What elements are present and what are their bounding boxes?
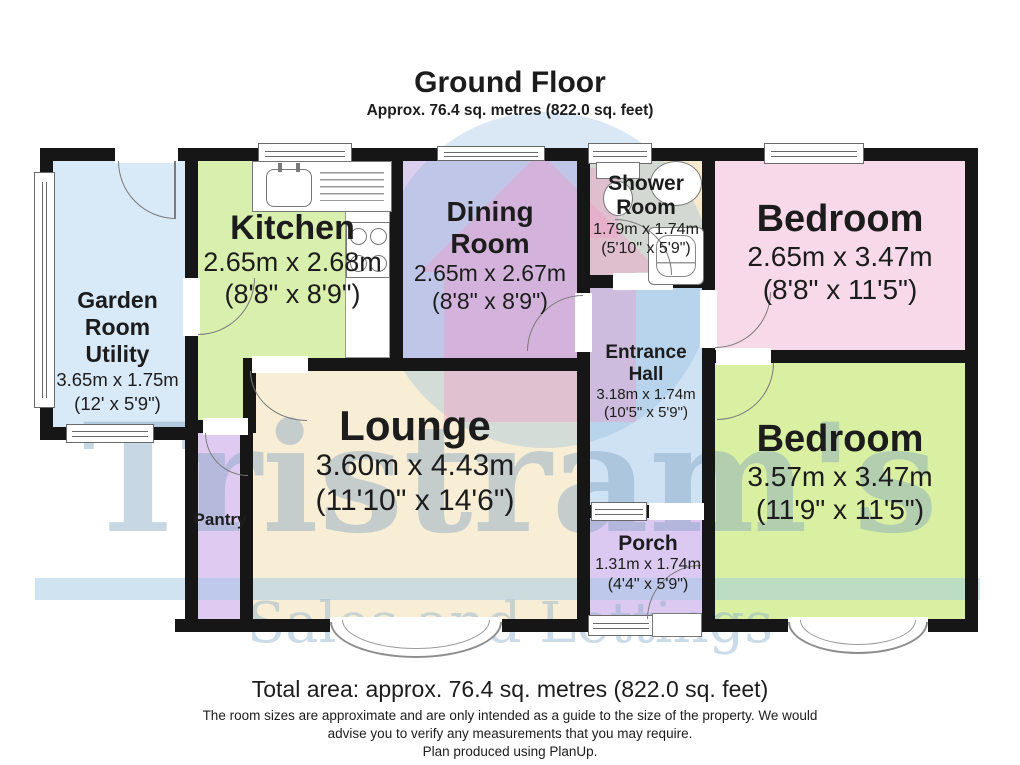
window-porch-bottom: [588, 615, 654, 636]
bay-window-bedroom2: [788, 622, 928, 654]
label-porch: Porch 1.31m x 1.74m (4'4" x 5'9"): [586, 532, 710, 595]
sink-icon: [266, 169, 312, 207]
sink-tap: [296, 163, 300, 172]
sink-tap: [278, 163, 282, 172]
page-subtitle: Approx. 76.4 sq. metres (822.0 sq. feet): [0, 102, 1020, 120]
disclaimer-line-3: Plan produced using PlanUp.: [0, 744, 1020, 759]
disclaimer-line-2: advise you to verify any measurements th…: [0, 726, 1020, 741]
window-dining: [437, 146, 545, 161]
disclaimer-line-1: The room sizes are approximate and are o…: [0, 708, 1020, 723]
window-hall-porch: [591, 502, 647, 521]
window-shower: [588, 143, 652, 164]
label-entrance-hall: Entrance Hall 3.18m x 1.74m (10'5" x 5'9…: [584, 342, 708, 423]
page-title: Ground Floor: [0, 66, 1020, 100]
window-bedroom1: [764, 143, 864, 164]
total-area-text: Total area: approx. 76.4 sq. metres (822…: [0, 676, 1020, 703]
bay-window-lounge: [330, 622, 502, 658]
floor-plan-page: Ground Floor Approx. 76.4 sq. metres (82…: [0, 0, 1020, 765]
drainer-icon: [320, 172, 384, 201]
room-kitchen-strip: [198, 358, 243, 420]
opening-hall-porch: [649, 503, 704, 520]
label-garden-utility: Garden Room Utility 3.65m x 1.75m (12' x…: [40, 287, 195, 415]
label-kitchen: Kitchen 2.65m x 2.68m (8'8" x 8'9"): [190, 210, 395, 311]
label-shower: Shower Room 1.79m x 1.74m (5'10" x 5'9"): [586, 172, 706, 259]
label-lounge: Lounge 3.60m x 4.43m (11'10" x 14'6"): [251, 404, 579, 519]
window-garden-bottom: [66, 424, 154, 443]
door-leaf-garden: [174, 161, 176, 219]
label-bedroom-2: Bedroom 3.57m x 3.47m (11'9" x 11'5"): [713, 420, 967, 526]
label-bedroom-1: Bedroom 2.65m x 3.47m (8'8" x 11'5"): [713, 200, 967, 306]
label-pantry: Pantry: [192, 510, 248, 530]
label-dining: Dining Room 2.65m x 2.67m (8'8" x 8'9"): [392, 196, 588, 316]
